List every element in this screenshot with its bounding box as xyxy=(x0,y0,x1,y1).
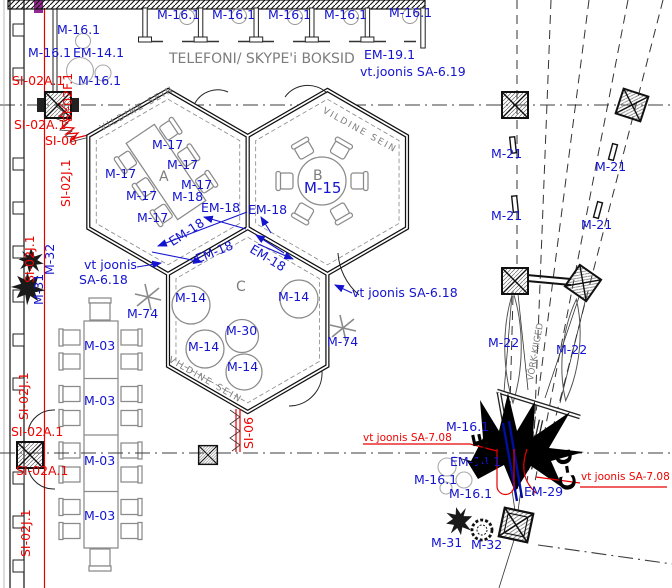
plan-label-m-16-1: M-16.1 xyxy=(449,488,492,501)
plan-label-m-21: M-21 xyxy=(491,210,522,223)
plan-label-m-16-1: M-16.1 xyxy=(414,474,457,487)
plan-label-si-02a-1: SI-02A.1 xyxy=(14,119,66,132)
plan-label-m-15: M-15 xyxy=(304,181,341,196)
plan-label-em-18: EM-18 xyxy=(167,217,207,249)
plan-label-m-17: M-17 xyxy=(167,159,198,172)
plan-label-si-02a-1: SI-02A.1 xyxy=(12,75,64,88)
plan-label-m-74: M-74 xyxy=(127,308,158,321)
plan-label-vt-joonis: vt joonis xyxy=(84,259,137,272)
plan-label-si-02j-1: SI-02J.1 xyxy=(20,509,33,557)
plan-label-si-02j-1: SI-02J.1 xyxy=(18,372,31,420)
plan-label-m-14: M-14 xyxy=(278,291,309,304)
plan-label-m-22: M-22 xyxy=(556,344,587,357)
plan-label-vt-joonis-sa-6-19: vt.joonis SA-6.19 xyxy=(360,66,466,79)
plan-label-võrk-kiiged: VÕRK-KIIGED xyxy=(527,323,546,382)
plan-label-m-17: M-17 xyxy=(137,212,168,225)
plan-label-em-18: EM-18 xyxy=(248,204,287,217)
plan-label-vt-joonis-sa-7-08: vt joonis SA-7.08 xyxy=(363,433,452,444)
plan-label-m-03: M-03 xyxy=(84,510,115,523)
plan-label-vildine-sein: VILDINE SEIN xyxy=(321,107,398,155)
plan-label-em-19-1: EM-19.1 xyxy=(364,49,415,62)
plan-label-m-74: M-74 xyxy=(327,336,358,349)
plan-label-vt-joonis-sa-7-08: vt joonis SA-7.08 xyxy=(581,472,670,483)
plan-label-m-16-1: M-16.1 xyxy=(389,7,432,20)
plan-label-si-02a-1: SI-02A.1 xyxy=(16,465,68,478)
plan-label-m-17: M-17 xyxy=(152,139,183,152)
plan-label-m-16-1: M-16.1 xyxy=(78,75,121,88)
plan-label-m-03: M-03 xyxy=(84,340,115,353)
plan-label-si-02a-1: SI-02A.1 xyxy=(11,426,63,439)
plan-label-m-16-1: M-16.1 xyxy=(57,24,100,37)
plan-label-a: A xyxy=(159,170,169,184)
plan-label-m-16-1: M-16.1 xyxy=(157,9,200,22)
plan-label-vt-joonis-sa-6-18: vt joonis SA-6.18 xyxy=(352,287,458,300)
plan-label-si-06: SI-06 xyxy=(45,135,77,148)
plan-label-em-14-1: EM-14.1 xyxy=(73,47,124,60)
floor-plan: M-16.1M-16.1EM-14.1M-16.1M-16.1M-16.1M-1… xyxy=(0,0,672,588)
plan-label-m-31: M-31 xyxy=(431,537,462,550)
plan-label-m-32: M-32 xyxy=(471,539,502,552)
plan-label-m-22: M-22 xyxy=(488,337,519,350)
plan-label-m-03: M-03 xyxy=(84,455,115,468)
plan-label-m-21: M-21 xyxy=(581,219,612,232)
plan-label-m-14: M-14 xyxy=(227,361,258,374)
plan-label-m-14: M-14 xyxy=(175,292,206,305)
plan-label-e-e: E-E xyxy=(470,429,500,472)
plan-label-sa-6-18: SA-6.18 xyxy=(79,274,128,287)
plan-label-si-02j-1: SI-02J.1 xyxy=(60,159,73,207)
labels-layer: M-16.1M-16.1EM-14.1M-16.1M-16.1M-16.1M-1… xyxy=(0,0,672,588)
plan-label-m-32: M-32 xyxy=(44,244,57,275)
plan-label-m-16-1: M-16.1 xyxy=(324,9,367,22)
plan-label-m-31: M-31 xyxy=(33,274,46,305)
plan-label-m-16-1: M-16.1 xyxy=(212,9,255,22)
plan-label-telefoni-skype-i-boksid: TELEFONI/ SKYPE'i BOKSID xyxy=(169,52,355,66)
plan-label-c: C xyxy=(236,280,246,294)
plan-label-vildine-sein: VILDINE SEIN xyxy=(99,86,176,134)
plan-label-si-06: SI-06 xyxy=(243,417,256,449)
plan-label-em-18: EM-18 xyxy=(194,239,235,265)
plan-label-em-18: EM-18 xyxy=(248,243,288,274)
plan-label-m-14: M-14 xyxy=(188,341,219,354)
plan-label-m-18: M-18 xyxy=(172,191,203,204)
plan-label-m-21: M-21 xyxy=(491,148,522,161)
plan-label-m-17: M-17 xyxy=(126,190,157,203)
plan-label-m-17: M-17 xyxy=(105,168,136,181)
plan-label-em-18: EM-18 xyxy=(201,202,240,215)
plan-label-m-30: M-30 xyxy=(226,325,257,338)
plan-label-m-16-1: M-16.1 xyxy=(268,9,311,22)
plan-label-m-16-1: M-16.1 xyxy=(28,47,71,60)
plan-label-m-21: M-21 xyxy=(595,161,626,174)
plan-label-m-03: M-03 xyxy=(84,395,115,408)
plan-label-c-c: C-C xyxy=(553,447,581,492)
